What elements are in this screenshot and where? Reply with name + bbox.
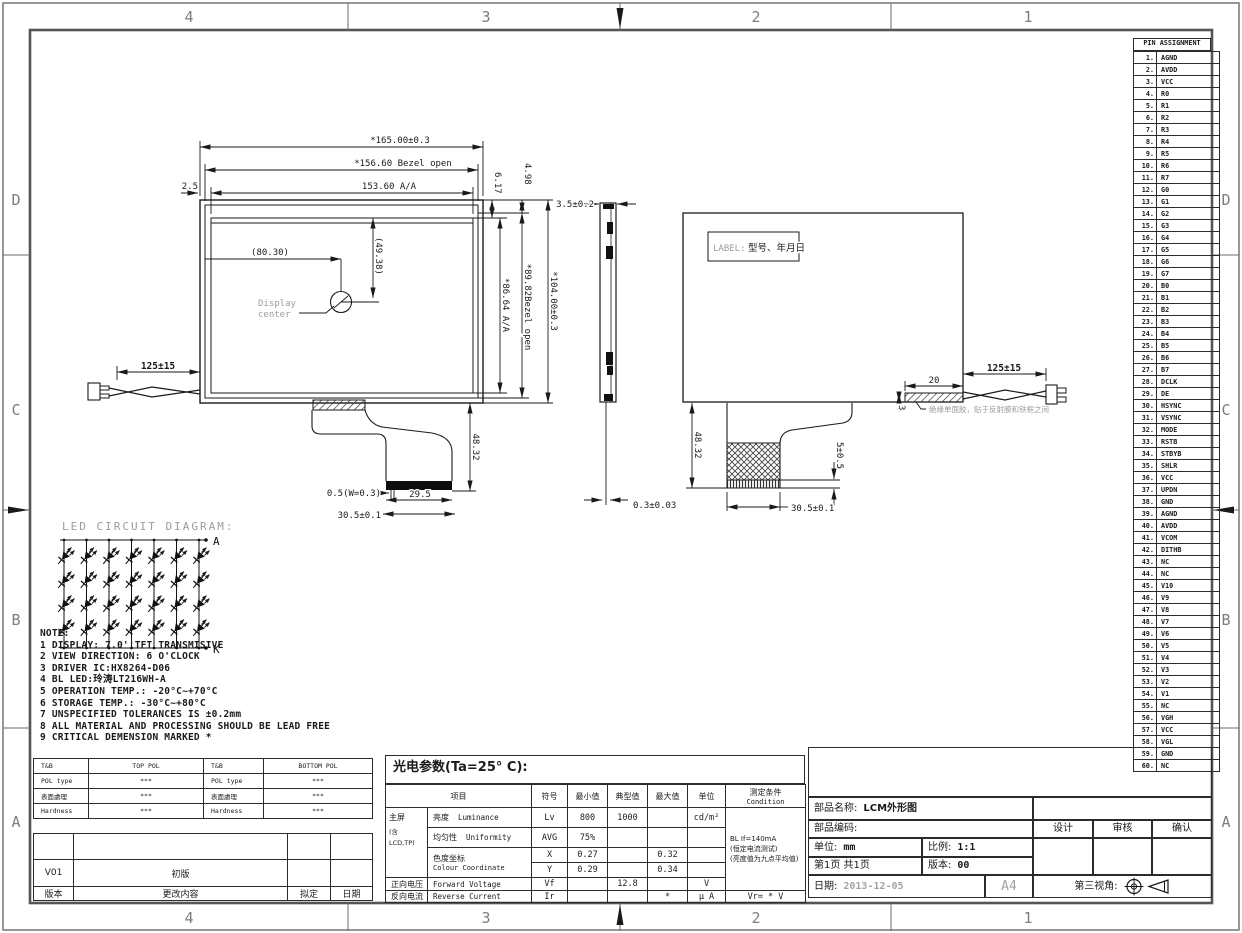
note-line: 5 OPERATION TEMP.: -20°C~+70°C xyxy=(40,686,470,698)
pin-number: 47. xyxy=(1134,604,1157,616)
dim-tape-width: 20 xyxy=(929,376,940,386)
pin-row: 32. MODE xyxy=(1134,424,1220,436)
pin-row: 38. GND xyxy=(1134,496,1220,508)
pin-number: 43. xyxy=(1134,556,1157,568)
pin-row: 47. V8 xyxy=(1134,604,1220,616)
opt-group-main: 主屏 xyxy=(389,812,427,823)
pin-name: NC xyxy=(1157,568,1220,580)
pin-row: 34. STBYB xyxy=(1134,448,1220,460)
pin-name: DCLK xyxy=(1157,376,1220,388)
polarizer-table: T&B TOP POL T&B BOTTOM POL POL type *** … xyxy=(33,758,373,819)
dim-front-width-bezel: *156.60 Bezel open xyxy=(354,159,452,169)
pin-number: 30. xyxy=(1134,400,1157,412)
pin-row: 2. AVDD xyxy=(1134,64,1220,76)
pin-number: 10. xyxy=(1134,160,1157,172)
zone-row-b-left: B xyxy=(11,611,20,629)
pin-number: 37. xyxy=(1134,484,1157,496)
pin-row: 44. NC xyxy=(1134,568,1220,580)
pin-row: 23. B3 xyxy=(1134,316,1220,328)
opt-vf-typ: 12.8 xyxy=(608,878,648,891)
tape-note: 绝缘单面胶，贴于反射膜和铁框之间 xyxy=(929,404,1049,414)
pin-name: AGND xyxy=(1157,508,1220,520)
pin-row: 31. VSYNC xyxy=(1134,412,1220,424)
pin-row: 12. G0 xyxy=(1134,184,1220,196)
pin-row: 8. R4 xyxy=(1134,136,1220,148)
pin-number: 53. xyxy=(1134,676,1157,688)
pin-name: VGH xyxy=(1157,712,1220,724)
pin-name: B3 xyxy=(1157,316,1220,328)
pin-number: 23. xyxy=(1134,316,1157,328)
pin-row: 39. AGND xyxy=(1134,508,1220,520)
opt-chroma-y-min: 0.29 xyxy=(568,863,608,878)
pin-number: 14. xyxy=(1134,208,1157,220)
pin-name: VGL xyxy=(1157,736,1220,748)
front-view: *165.00±0.3 *156.60 Bezel open 153.60 A/… xyxy=(88,136,558,521)
opt-chroma-y-symbol: Y xyxy=(532,863,568,878)
pin-row: 9. R5 xyxy=(1134,148,1220,160)
pin-number: 8. xyxy=(1134,136,1157,148)
pin-name: G3 xyxy=(1157,220,1220,232)
opt-chroma-y-max: 0.34 xyxy=(648,863,688,878)
pin-row: 50. V5 xyxy=(1134,640,1220,652)
pin-row: 42. DITHB xyxy=(1134,544,1220,556)
pin-row: 30. HSYNC xyxy=(1134,400,1220,412)
opt-luminance-max xyxy=(648,808,688,828)
side-view: 3.5±0.2 0.3±0.03 xyxy=(556,200,676,511)
pol-cell: *** xyxy=(89,804,204,819)
part-name-label: 部品名称: xyxy=(814,804,857,814)
pin-number: 9. xyxy=(1134,148,1157,160)
opt-chroma-x-min: 0.27 xyxy=(568,848,608,863)
pin-row: 46. V9 xyxy=(1134,592,1220,604)
pol-cell: Hardness xyxy=(204,804,264,819)
rev-cell xyxy=(288,834,331,860)
page-label: 第1页 共1页 xyxy=(814,861,870,871)
pin-number: 46. xyxy=(1134,592,1157,604)
opt-ir-name-cn: 反向电流 xyxy=(386,891,428,903)
dim-front-wire-length: 125±15 xyxy=(141,361,176,372)
pin-row: 26. B6 xyxy=(1134,352,1220,364)
rev-cell: 拟定 xyxy=(288,887,331,901)
pin-number: 5. xyxy=(1134,100,1157,112)
pin-name: B6 xyxy=(1157,352,1220,364)
pin-name: R1 xyxy=(1157,100,1220,112)
unit-value: mm xyxy=(843,843,855,853)
pin-name: VCC xyxy=(1157,724,1220,736)
pin-number: 24. xyxy=(1134,328,1157,340)
dim-front-top2: 4.98 xyxy=(522,163,532,185)
pin-name: AVDD xyxy=(1157,64,1220,76)
pin-name: V5 xyxy=(1157,640,1220,652)
pol-cell: T&B xyxy=(204,759,264,774)
pin-name: G5 xyxy=(1157,244,1220,256)
pin-name: V10 xyxy=(1157,580,1220,592)
pin-row: 13. G1 xyxy=(1134,196,1220,208)
opt-ir-condition: Vr= * V xyxy=(726,891,806,903)
pin-name: V4 xyxy=(1157,652,1220,664)
pin-name: VCC xyxy=(1157,76,1220,88)
pin-name: R4 xyxy=(1157,136,1220,148)
pol-cell: T&B xyxy=(34,759,89,774)
pin-name: VSYNC xyxy=(1157,412,1220,424)
revision-table: V01 初版 版本 更改内容 拟定 日期 xyxy=(33,833,373,901)
opt-luminance-typ: 1000 xyxy=(608,808,648,828)
part-code-cell: 部品编码: xyxy=(808,820,1033,838)
note-line: 9 CRITICAL DEMENSION MARKED * xyxy=(40,732,470,744)
pin-row: 22. B2 xyxy=(1134,304,1220,316)
zone-row-a-left: A xyxy=(11,813,20,831)
pin-row: 56. VGH xyxy=(1134,712,1220,724)
design-header: 设计 xyxy=(1033,820,1093,838)
pin-name: AGND xyxy=(1157,52,1220,64)
zone-col-3-bottom: 3 xyxy=(481,909,490,927)
pol-cell: *** xyxy=(89,774,204,789)
version-label: 版本: xyxy=(928,861,951,871)
pin-name: UPDN xyxy=(1157,484,1220,496)
pin-number: 42. xyxy=(1134,544,1157,556)
revision-row xyxy=(34,834,373,860)
pin-row: 16. G4 xyxy=(1134,232,1220,244)
pin-row: 7. R3 xyxy=(1134,124,1220,136)
pin-assignment-table: PIN ASSIGNMENT 1. AGND 2. AVDD 3. VCC xyxy=(1133,38,1211,772)
pin-number: 58. xyxy=(1134,736,1157,748)
notes-block: NOTE: 1 DISPLAY: 7.0''TFT TRANSMISIVE2 V… xyxy=(40,628,470,744)
opt-empty xyxy=(608,828,648,848)
pin-row: 58. VGL xyxy=(1134,736,1220,748)
pin-number: 52. xyxy=(1134,664,1157,676)
audit-header: 审核 xyxy=(1093,820,1152,838)
opt-condition-cell: BL If=140mA (恒定电流测试) (亮度值为九点平均值) xyxy=(726,808,806,891)
pin-name: R2 xyxy=(1157,112,1220,124)
pin-number: 27. xyxy=(1134,364,1157,376)
pin-number: 12. xyxy=(1134,184,1157,196)
pin-name: R0 xyxy=(1157,88,1220,100)
pin-name: HSYNC xyxy=(1157,400,1220,412)
opt-header-condition-cn: 测定条件 xyxy=(726,787,805,798)
pin-name: G4 xyxy=(1157,232,1220,244)
pin-name: V2 xyxy=(1157,676,1220,688)
revision-row: 版本 更改内容 拟定 日期 xyxy=(34,887,373,901)
pin-name: STBYB xyxy=(1157,448,1220,460)
pin-row: 18. G6 xyxy=(1134,256,1220,268)
opt-uniformity-min: 75% xyxy=(568,828,608,848)
dim-back-wire-length: 125±15 xyxy=(987,363,1022,374)
pin-name: RSTB xyxy=(1157,436,1220,448)
opt-ir-name-en: Reverse Current xyxy=(428,891,532,903)
pin-number: 4. xyxy=(1134,88,1157,100)
pin-name: B5 xyxy=(1157,340,1220,352)
pol-cell: *** xyxy=(264,789,373,804)
led-diagram-title: LED CIRCUIT DIAGRAM: xyxy=(62,520,234,533)
opt-header-item: 项目 xyxy=(386,785,532,808)
opt-ir-unit: µ A xyxy=(688,891,726,903)
unit-cell: 单位: mm xyxy=(808,838,922,857)
pin-number: 28. xyxy=(1134,376,1157,388)
dim-front-height-aa: *86.64 A/A xyxy=(500,278,510,333)
pin-row: 45. V10 xyxy=(1134,580,1220,592)
opt-vf-symbol: Vf xyxy=(532,878,568,891)
optical-title: 光电参数(Ta=25° C): xyxy=(385,755,805,784)
pin-row: 21. B1 xyxy=(1134,292,1220,304)
revision-row: V01 初版 xyxy=(34,860,373,887)
pin-name: B2 xyxy=(1157,304,1220,316)
pin-number: 21. xyxy=(1134,292,1157,304)
pin-number: 17. xyxy=(1134,244,1157,256)
pin-name: DE xyxy=(1157,388,1220,400)
rev-cell: 日期 xyxy=(331,887,373,901)
pin-number: 18. xyxy=(1134,256,1157,268)
notes-title: NOTE: xyxy=(40,628,470,640)
pin-row: 11. R7 xyxy=(1134,172,1220,184)
pin-name: VCC xyxy=(1157,472,1220,484)
unit-label: 单位: xyxy=(814,843,837,853)
pin-number: 50. xyxy=(1134,640,1157,652)
pin-name: NC xyxy=(1157,556,1220,568)
pol-cell: POL type xyxy=(34,774,89,789)
pin-number: 35. xyxy=(1134,460,1157,472)
pin-row: 55. NC xyxy=(1134,700,1220,712)
opt-header-unit: 单位 xyxy=(688,785,726,808)
pin-number: 26. xyxy=(1134,352,1157,364)
pin-row: 33. RSTB xyxy=(1134,436,1220,448)
part-name-cell: 部品名称: LCM外形图 xyxy=(808,797,1033,820)
pin-name: R5 xyxy=(1157,148,1220,160)
pin-number: 54. xyxy=(1134,688,1157,700)
opt-empty xyxy=(608,863,648,878)
pol-cell: TOP POL xyxy=(89,759,204,774)
opt-empty xyxy=(568,878,608,891)
pin-number: 22. xyxy=(1134,304,1157,316)
rev-cell xyxy=(34,834,74,860)
dim-back-pad: 5±0.5 xyxy=(834,442,844,469)
opt-empty xyxy=(688,848,726,863)
pin-row: 1. AGND xyxy=(1134,52,1220,64)
pin-name: G1 xyxy=(1157,196,1220,208)
pin-name: B0 xyxy=(1157,280,1220,292)
rev-cell: 版本 xyxy=(34,887,74,901)
dim-front-width-outline: *165.00±0.3 xyxy=(370,136,430,146)
opt-luminance-symbol: Lv xyxy=(532,808,568,828)
pol-cell: POL type xyxy=(204,774,264,789)
pin-name: GND xyxy=(1157,496,1220,508)
pin-number: 11. xyxy=(1134,172,1157,184)
note-line: 2 VIEW DIRECTION: 6 O'CLOCK xyxy=(40,651,470,663)
opt-empty xyxy=(568,891,608,903)
pin-number: 56. xyxy=(1134,712,1157,724)
note-line: 4 BL LED:玲涛LT216WH-A xyxy=(40,674,470,686)
pin-name: G6 xyxy=(1157,256,1220,268)
led-anode-label: A xyxy=(213,535,220,548)
opt-header-symbol: 符号 xyxy=(532,785,568,808)
polarizer-row: Hardness *** Hardness *** xyxy=(34,804,373,819)
opt-condition-line1: BL If=140mA xyxy=(730,834,805,844)
scale-label: 比例: xyxy=(928,843,951,853)
pin-row: 40. AVDD xyxy=(1134,520,1220,532)
pin-row: 14. G2 xyxy=(1134,208,1220,220)
opt-vf-unit: V xyxy=(688,878,726,891)
opt-ir-symbol: Ir xyxy=(532,891,568,903)
opt-vf-name-en: Forward Voltage xyxy=(428,878,532,891)
dim-fpc-width1: 29.5 xyxy=(409,490,431,500)
fpc-crosshatch-pad xyxy=(727,443,780,480)
pin-row: 49. V6 xyxy=(1134,628,1220,640)
pin-name: V1 xyxy=(1157,688,1220,700)
pin-number: 57. xyxy=(1134,724,1157,736)
pin-name: DITHB xyxy=(1157,544,1220,556)
label-prefix: LABEL: xyxy=(713,244,746,254)
pin-row: 6. R2 xyxy=(1134,112,1220,124)
pin-number: 40. xyxy=(1134,520,1157,532)
pin-row: 41. VCOM xyxy=(1134,532,1220,544)
opt-chroma-name: 色度坐标Colour Coordinate xyxy=(428,848,532,878)
pin-number: 39. xyxy=(1134,508,1157,520)
date-cell: 日期: 2013-12-05 xyxy=(808,875,985,898)
projection-cell: 第三视角: xyxy=(1033,875,1212,898)
opt-header-min: 最小值 xyxy=(568,785,608,808)
zone-col-4-top: 4 xyxy=(184,8,193,26)
pin-row: 19. G7 xyxy=(1134,268,1220,280)
pin-name: G7 xyxy=(1157,268,1220,280)
audit-signature-cell xyxy=(1093,838,1152,875)
opt-luminance-unit: cd/m² xyxy=(688,808,726,828)
pin-name: R3 xyxy=(1157,124,1220,136)
pin-name: B7 xyxy=(1157,364,1220,376)
rev-cell xyxy=(331,860,373,887)
pin-number: 1. xyxy=(1134,52,1157,64)
opt-empty xyxy=(608,891,648,903)
pol-cell: Hardness xyxy=(34,804,89,819)
pin-number: 33. xyxy=(1134,436,1157,448)
dim-front-height-bezel: *89.82Bezel open xyxy=(522,264,532,351)
pin-row: 48. V7 xyxy=(1134,616,1220,628)
part-name-value: LCM外形图 xyxy=(863,804,917,814)
zone-col-1-top: 1 xyxy=(1023,8,1032,26)
pin-row: 15. G3 xyxy=(1134,220,1220,232)
fpc-connector-bar xyxy=(386,481,452,490)
pin-number: 55. xyxy=(1134,700,1157,712)
rev-cell xyxy=(288,860,331,887)
pin-name: R7 xyxy=(1157,172,1220,184)
opt-empty xyxy=(648,878,688,891)
polarizer-row: T&B TOP POL T&B BOTTOM POL xyxy=(34,759,373,774)
paper-size: A4 xyxy=(1001,880,1017,893)
opt-group-sub1: (含 xyxy=(389,826,427,836)
pin-number: 36. xyxy=(1134,472,1157,484)
engineering-drawing-page: { "sheet": { "cols": ["4", "3", "2", "1"… xyxy=(0,0,1242,933)
rev-cell xyxy=(331,834,373,860)
scale-value: 1:1 xyxy=(957,843,975,853)
zone-row-a-right: A xyxy=(1221,813,1230,831)
third-angle-projection-icon xyxy=(1124,877,1176,896)
pin-number: 32. xyxy=(1134,424,1157,436)
zone-row-d-left: D xyxy=(11,191,20,209)
pin-number: 45. xyxy=(1134,580,1157,592)
page-cell: 第1页 共1页 xyxy=(808,857,922,875)
note-line: 8 ALL MATERIAL AND PROCESSING SHOULD BE … xyxy=(40,721,470,733)
opt-header-condition: 测定条件 Condition xyxy=(726,785,806,808)
pin-number: 3. xyxy=(1134,76,1157,88)
pin-row: 5. R1 xyxy=(1134,100,1220,112)
pin-name: AVDD xyxy=(1157,520,1220,532)
pin-row: 10. R6 xyxy=(1134,160,1220,172)
dim-front-top1: 6.17 xyxy=(492,172,502,194)
pin-row: 53. V2 xyxy=(1134,676,1220,688)
pol-cell: *** xyxy=(264,804,373,819)
pol-cell: 表面處理 xyxy=(34,789,89,804)
pin-number: 38. xyxy=(1134,496,1157,508)
note-line: 1 DISPLAY: 7.0''TFT TRANSMISIVE xyxy=(40,640,470,652)
zone-row-b-right: B xyxy=(1221,611,1230,629)
pin-name: V8 xyxy=(1157,604,1220,616)
label-text: 型号、年月日 xyxy=(748,242,805,254)
pin-row: 57. VCC xyxy=(1134,724,1220,736)
version-value: 00 xyxy=(957,861,969,871)
title-block-empty-right xyxy=(1033,797,1212,820)
pol-cell: *** xyxy=(89,789,204,804)
title-block-empty-top xyxy=(808,747,1212,797)
pin-name: NC xyxy=(1157,700,1220,712)
dim-fpc-height: 48.32 xyxy=(470,433,480,460)
pin-name: G0 xyxy=(1157,184,1220,196)
dim-front-edge-gap: 2.5 xyxy=(182,182,198,192)
pin-name: G2 xyxy=(1157,208,1220,220)
pin-number: 13. xyxy=(1134,196,1157,208)
opt-uniformity-name: 均匀性Uniformity xyxy=(428,828,532,848)
opt-empty xyxy=(688,863,726,878)
date-label: 日期: xyxy=(814,882,837,892)
pin-number: 49. xyxy=(1134,628,1157,640)
pin-number: 31. xyxy=(1134,412,1157,424)
pin-row: 27. B7 xyxy=(1134,364,1220,376)
zone-col-2-bottom: 2 xyxy=(751,909,760,927)
pin-number: 20. xyxy=(1134,280,1157,292)
pin-number: 34. xyxy=(1134,448,1157,460)
note-line: 3 DRIVER IC:HX8264-D06 xyxy=(40,663,470,675)
opt-luminance-min: 800 xyxy=(568,808,608,828)
opt-header-condition-en: Condition xyxy=(726,798,805,806)
pol-cell: BOTTOM POL xyxy=(264,759,373,774)
pin-name: MODE xyxy=(1157,424,1220,436)
part-code-label: 部品编码: xyxy=(814,824,857,834)
pin-name: V3 xyxy=(1157,664,1220,676)
pin-row: 54. V1 xyxy=(1134,688,1220,700)
pin-name: B1 xyxy=(1157,292,1220,304)
pin-number: 15. xyxy=(1134,220,1157,232)
pin-name: R6 xyxy=(1157,160,1220,172)
pin-name: V9 xyxy=(1157,592,1220,604)
opt-header-max: 最大值 xyxy=(648,785,688,808)
dim-front-height-outline: *104.00±0.3 xyxy=(548,271,558,331)
dim-back-fpc-width: 30.5±0.1 xyxy=(791,504,834,514)
zone-row-d-right: D xyxy=(1221,191,1230,209)
dim-fpc-width2: 30.5±0.1 xyxy=(338,511,381,521)
confirm-signature-cell xyxy=(1152,838,1212,875)
note-line: 6 STORAGE TEMP.: -30°C~+80°C xyxy=(40,698,470,710)
opt-luminance-name: 亮度Luminance xyxy=(428,808,532,828)
pin-row: 51. V4 xyxy=(1134,652,1220,664)
opt-chroma-x-max: 0.32 xyxy=(648,848,688,863)
rev-cell: 初版 xyxy=(74,860,288,887)
insulating-tape-hatch xyxy=(905,393,963,402)
pin-number: 44. xyxy=(1134,568,1157,580)
title-block: 部品名称: LCM外形图 部品编码: 单位: mm 比例: 1:1 第1页 共1… xyxy=(808,747,1212,898)
opt-group-cell: 主屏 (含 LCD,TP) xyxy=(386,808,428,878)
opt-empty xyxy=(648,828,688,848)
back-view: LABEL: 型号、年月日 20 3 绝缘单面胶，贴于反射膜和铁框之间 125±… xyxy=(683,213,1066,514)
rev-cell: 更改内容 xyxy=(74,887,288,901)
zone-col-4-bottom: 4 xyxy=(184,909,193,927)
pin-row: 24. B4 xyxy=(1134,328,1220,340)
